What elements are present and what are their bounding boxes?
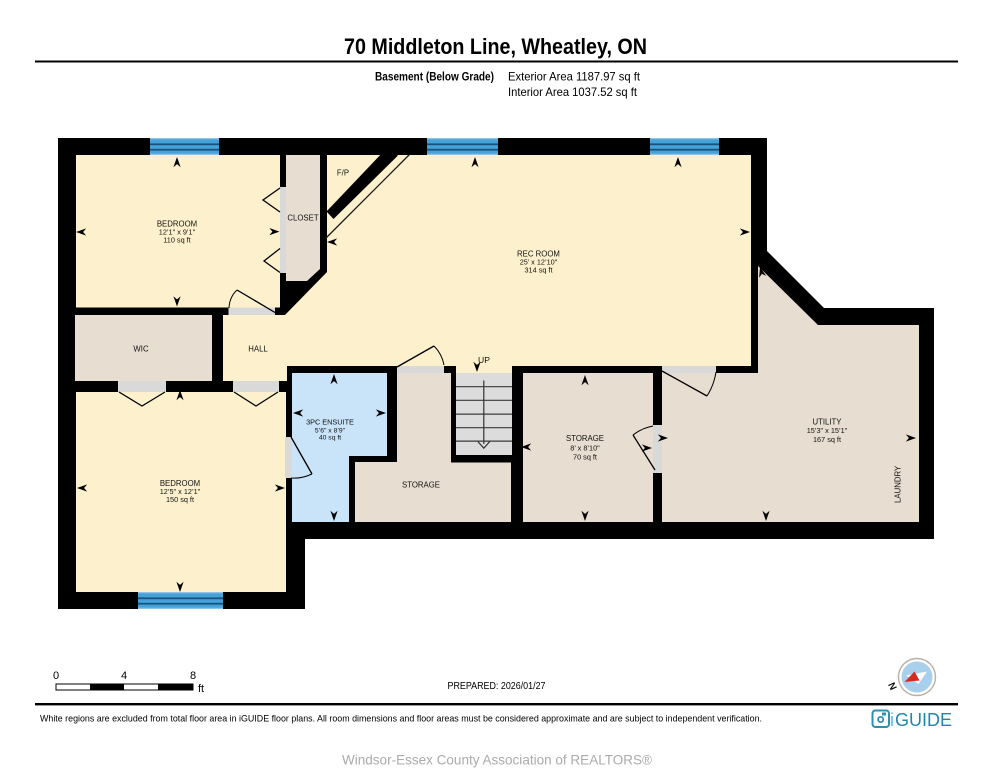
svg-text:167 sq ft: 167 sq ft [813,435,841,444]
svg-text:i: i [890,710,894,730]
svg-text:8: 8 [190,670,196,682]
svg-text:8’ x 8’10": 8’ x 8’10" [570,444,600,453]
svg-text:Windsor-Essex County Associati: Windsor-Essex County Association of REAL… [342,752,653,768]
svg-text:4: 4 [121,670,127,682]
svg-text:150 sq ft: 150 sq ft [166,495,194,504]
svg-text:STORAGE: STORAGE [566,434,604,443]
svg-text:LAUNDRY: LAUNDRY [894,465,903,503]
svg-text:3PC ENSUITE: 3PC ENSUITE [306,417,354,426]
svg-text:70 sq ft: 70 sq ft [573,453,597,462]
svg-text:White regions are excluded fro: White regions are excluded from total fl… [40,714,762,724]
svg-text:WIC: WIC [133,345,149,354]
svg-text:N: N [885,681,898,692]
svg-text:F/P: F/P [337,169,349,178]
svg-text:CLOSET: CLOSET [287,214,318,223]
svg-text:314 sq ft: 314 sq ft [525,266,553,275]
svg-text:Basement (Below Grade): Basement (Below Grade) [375,70,494,84]
svg-text:70 Middleton Line, Wheatley, O: 70 Middleton Line, Wheatley, ON [344,34,647,59]
svg-text:Exterior Area 1187.97 sq ft: Exterior Area 1187.97 sq ft [508,70,641,84]
svg-text:ft: ft [198,683,204,695]
svg-text:STORAGE: STORAGE [402,481,440,490]
svg-text:15’3" x 15’1": 15’3" x 15’1" [807,426,848,435]
svg-text:GUIDE: GUIDE [895,710,952,730]
svg-text:40 sq ft: 40 sq ft [319,434,341,441]
svg-text:0: 0 [53,670,59,682]
svg-text:PREPARED: 2026/01/27: PREPARED: 2026/01/27 [448,680,546,692]
svg-text:HALL: HALL [248,344,268,353]
svg-text:Interior Area 1037.52 sq ft: Interior Area 1037.52 sq ft [508,85,638,99]
svg-text:110 sq ft: 110 sq ft [163,236,190,245]
svg-text:5’6" x 8’9": 5’6" x 8’9" [315,427,346,434]
